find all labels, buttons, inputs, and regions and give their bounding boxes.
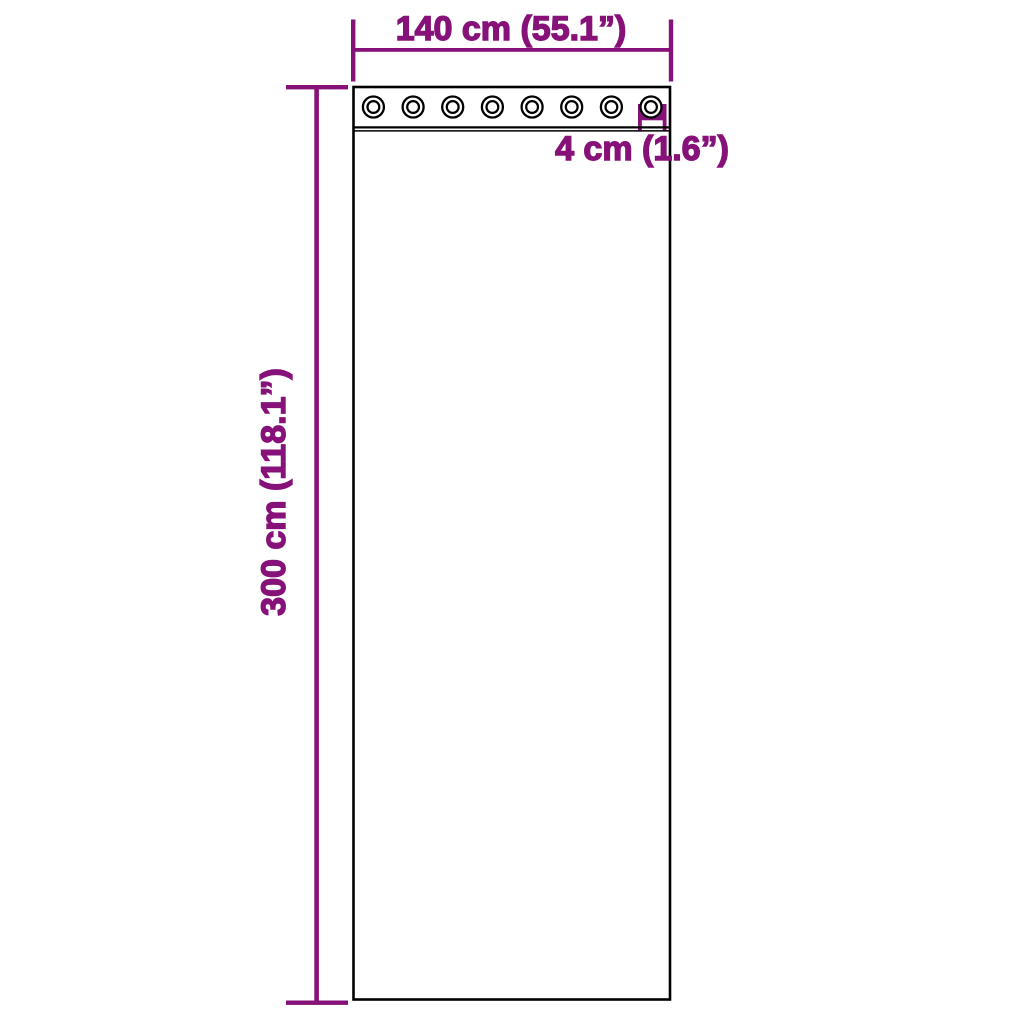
svg-text:300 cm (118.1”): 300 cm (118.1”): [255, 368, 293, 616]
svg-text:140 cm (55.1”): 140 cm (55.1”): [396, 10, 627, 48]
svg-text:4 cm (1.6”): 4 cm (1.6”): [555, 130, 729, 168]
